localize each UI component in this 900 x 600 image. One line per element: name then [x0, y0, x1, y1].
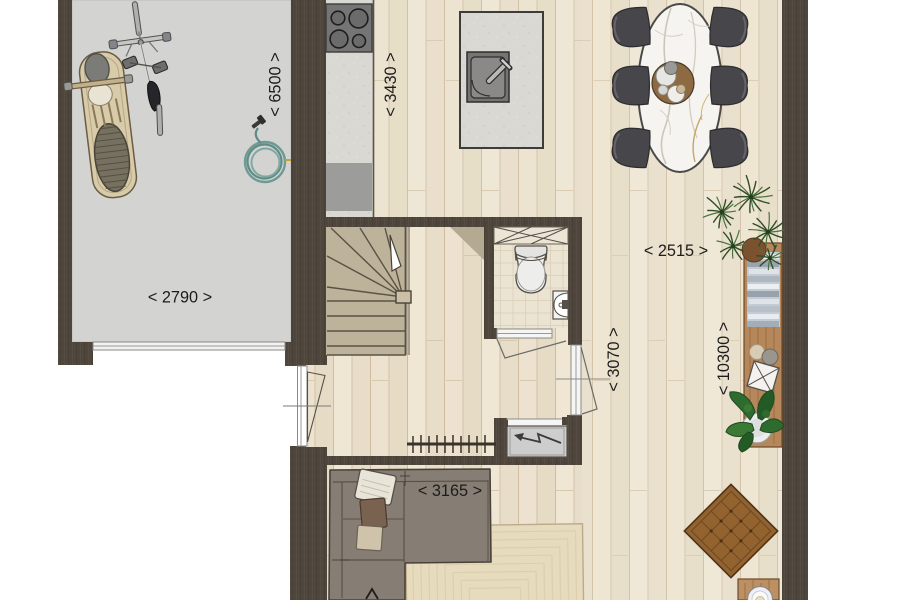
svg-text:< 2790 >: < 2790 >	[148, 289, 212, 307]
svg-text:< 6500 >: < 6500 >	[267, 52, 285, 116]
svg-text:< 3070 >: < 3070 >	[605, 327, 623, 391]
svg-text:< 3165 >: < 3165 >	[418, 482, 482, 500]
svg-text:< 10300 >: < 10300 >	[715, 322, 733, 395]
svg-text:< 2515 >: < 2515 >	[644, 242, 708, 260]
svg-text:< 3430 >: < 3430 >	[382, 52, 400, 116]
